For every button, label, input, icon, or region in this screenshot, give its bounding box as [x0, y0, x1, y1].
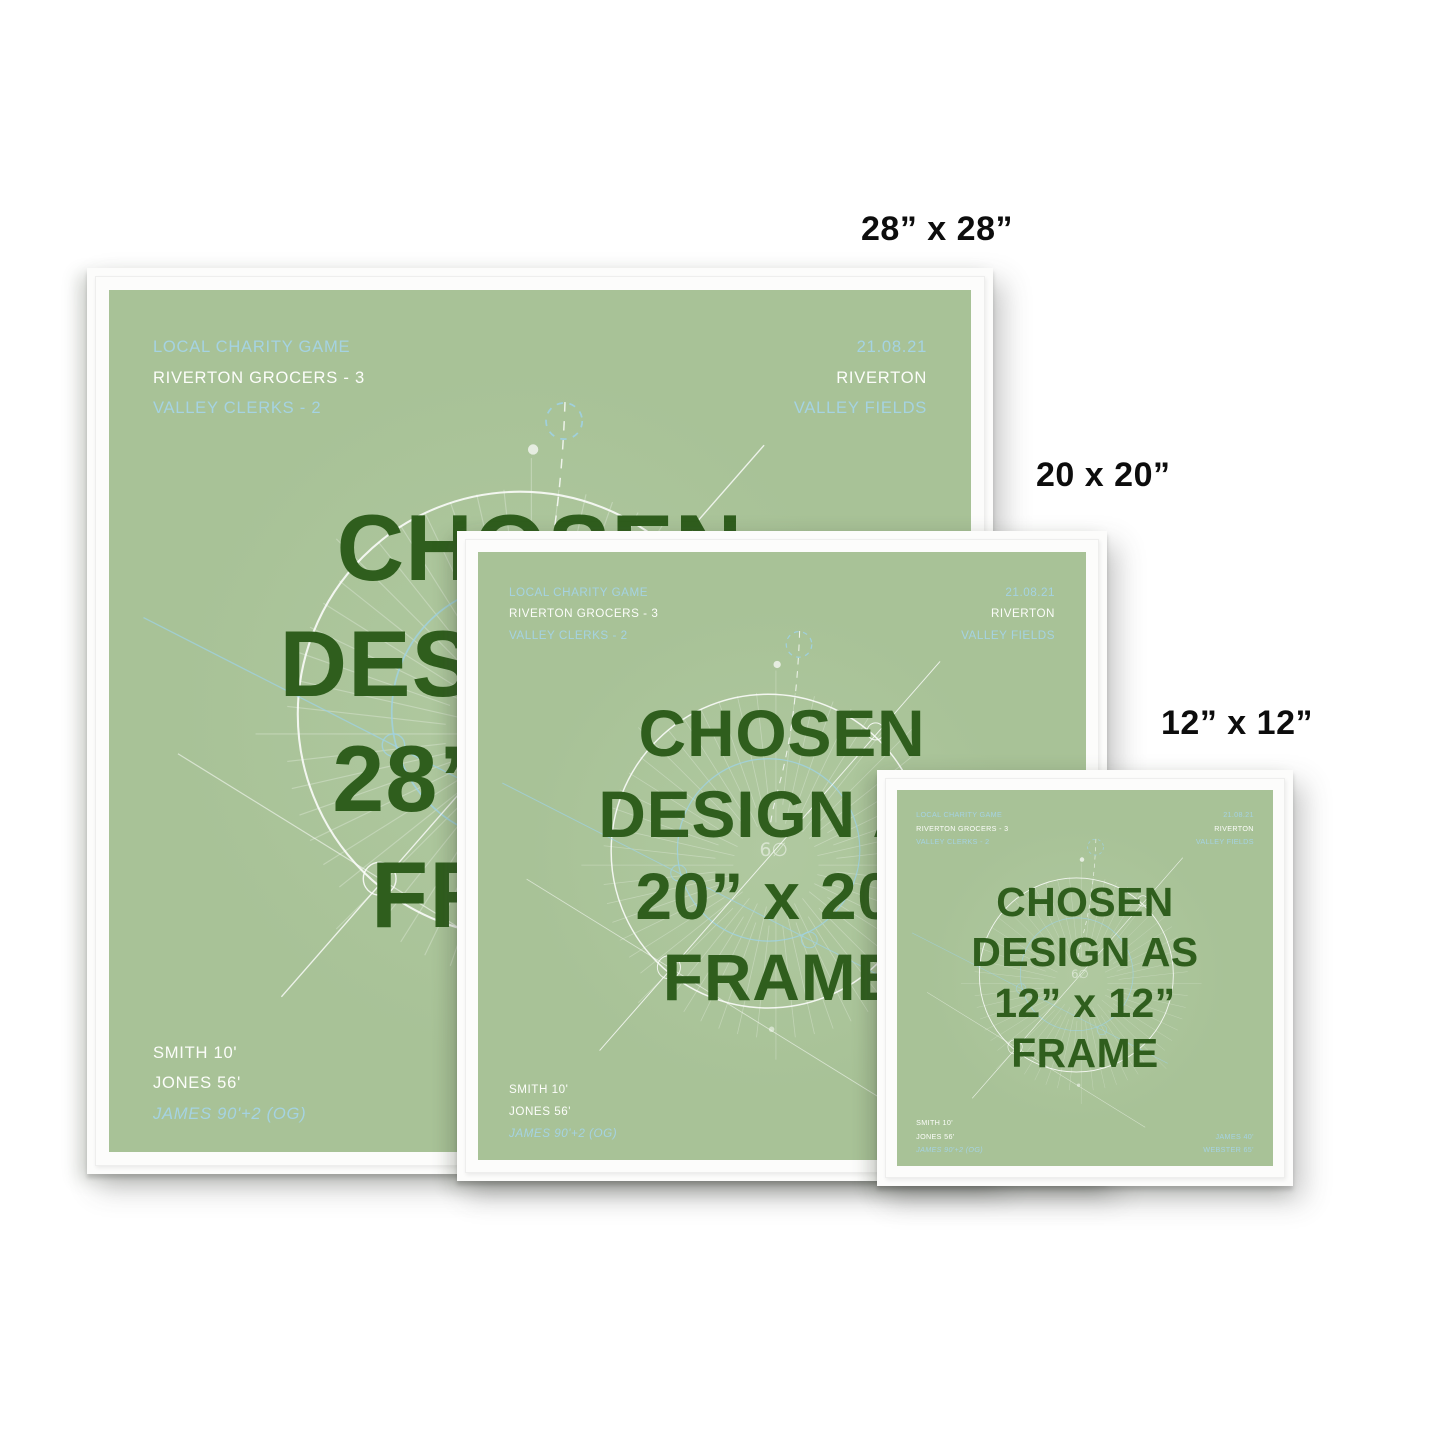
match-info-top-right: 21.08.21 RIVERTON VALLEY FIELDS — [1196, 808, 1254, 848]
match-info-top-left: LOCAL CHARITY GAME RIVERTON GROCERS - 3 … — [509, 582, 658, 647]
match-date: 21.08.21 — [794, 332, 927, 363]
match-info-top-left: LOCAL CHARITY GAME RIVERTON GROCERS - 3 … — [153, 332, 365, 424]
home-team-score: RIVERTON GROCERS - 3 — [916, 822, 1008, 835]
home-scorers-list: SMITH 10' JONES 56' JAMES 90'+2 (OG) — [916, 1116, 983, 1156]
competition-name: LOCAL CHARITY GAME — [153, 332, 365, 363]
away-scorer-1: JAMES 40' — [1203, 1130, 1254, 1143]
match-info-top-right: 21.08.21 RIVERTON VALLEY FIELDS — [961, 582, 1055, 647]
home-scorers-list: SMITH 10' JONES 56' JAMES 90'+2 (OG) — [509, 1079, 617, 1144]
home-scorer-1: SMITH 10' — [916, 1116, 983, 1129]
match-info-top-right: 21.08.21 RIVERTON VALLEY FIELDS — [794, 332, 927, 424]
match-city: RIVERTON — [961, 603, 1055, 625]
title-line-3: 12” x 12” — [897, 978, 1273, 1028]
own-goal-scorer: JAMES 90'+2 (OG) — [509, 1123, 617, 1145]
size-label-20: 20 x 20” — [1036, 456, 1171, 495]
away-scorers-list: JAMES 40' WEBSTER 65' — [1203, 1130, 1254, 1157]
match-date: 21.08.21 — [1196, 808, 1254, 821]
title-line-1: CHOSEN — [478, 693, 1086, 774]
home-scorer-2: JONES 56' — [153, 1068, 306, 1099]
match-date: 21.08.21 — [961, 582, 1055, 604]
own-goal-scorer: JAMES 90'+2 (OG) — [916, 1143, 983, 1156]
away-scorer-2: WEBSTER 65' — [1203, 1143, 1254, 1156]
match-city: RIVERTON — [794, 363, 927, 394]
home-team-score: RIVERTON GROCERS - 3 — [153, 363, 365, 394]
venue-name: VALLEY FIELDS — [961, 625, 1055, 647]
away-team-score: VALLEY CLERKS - 2 — [916, 835, 1008, 848]
own-goal-scorer: JAMES 90'+2 (OG) — [153, 1099, 306, 1130]
poster-artwork-12in: LOCAL CHARITY GAME RIVERTON GROCERS - 3 … — [897, 790, 1273, 1166]
away-team-score: VALLEY CLERKS - 2 — [153, 393, 365, 424]
away-team-score: VALLEY CLERKS - 2 — [509, 625, 658, 647]
competition-name: LOCAL CHARITY GAME — [509, 582, 658, 604]
title-line-4: FRAME — [897, 1028, 1273, 1078]
home-scorer-1: SMITH 10' — [153, 1038, 306, 1069]
match-info-top-left: LOCAL CHARITY GAME RIVERTON GROCERS - 3 … — [916, 808, 1008, 848]
poster-title-12in: CHOSEN DESIGN AS 12” x 12” FRAME — [897, 877, 1273, 1079]
competition-name: LOCAL CHARITY GAME — [916, 808, 1008, 821]
home-scorer-2: JONES 56' — [509, 1101, 617, 1123]
title-line-1: CHOSEN — [897, 877, 1273, 927]
size-label-12: 12” x 12” — [1161, 704, 1313, 743]
match-city: RIVERTON — [1196, 822, 1254, 835]
title-line-2: DESIGN AS — [897, 928, 1273, 978]
venue-name: VALLEY FIELDS — [794, 393, 927, 424]
home-scorer-1: SMITH 10' — [509, 1079, 617, 1101]
home-scorer-2: JONES 56' — [916, 1130, 983, 1143]
home-team-score: RIVERTON GROCERS - 3 — [509, 603, 658, 625]
frame-size-mockup-scene: LOCAL CHARITY GAME RIVERTON GROCERS - 3 … — [0, 0, 1445, 1445]
size-label-28: 28” x 28” — [861, 210, 1013, 249]
framed-poster-12in: LOCAL CHARITY GAME RIVERTON GROCERS - 3 … — [877, 770, 1293, 1186]
home-scorers-list: SMITH 10' JONES 56' JAMES 90'+2 (OG) — [153, 1038, 306, 1130]
venue-name: VALLEY FIELDS — [1196, 835, 1254, 848]
